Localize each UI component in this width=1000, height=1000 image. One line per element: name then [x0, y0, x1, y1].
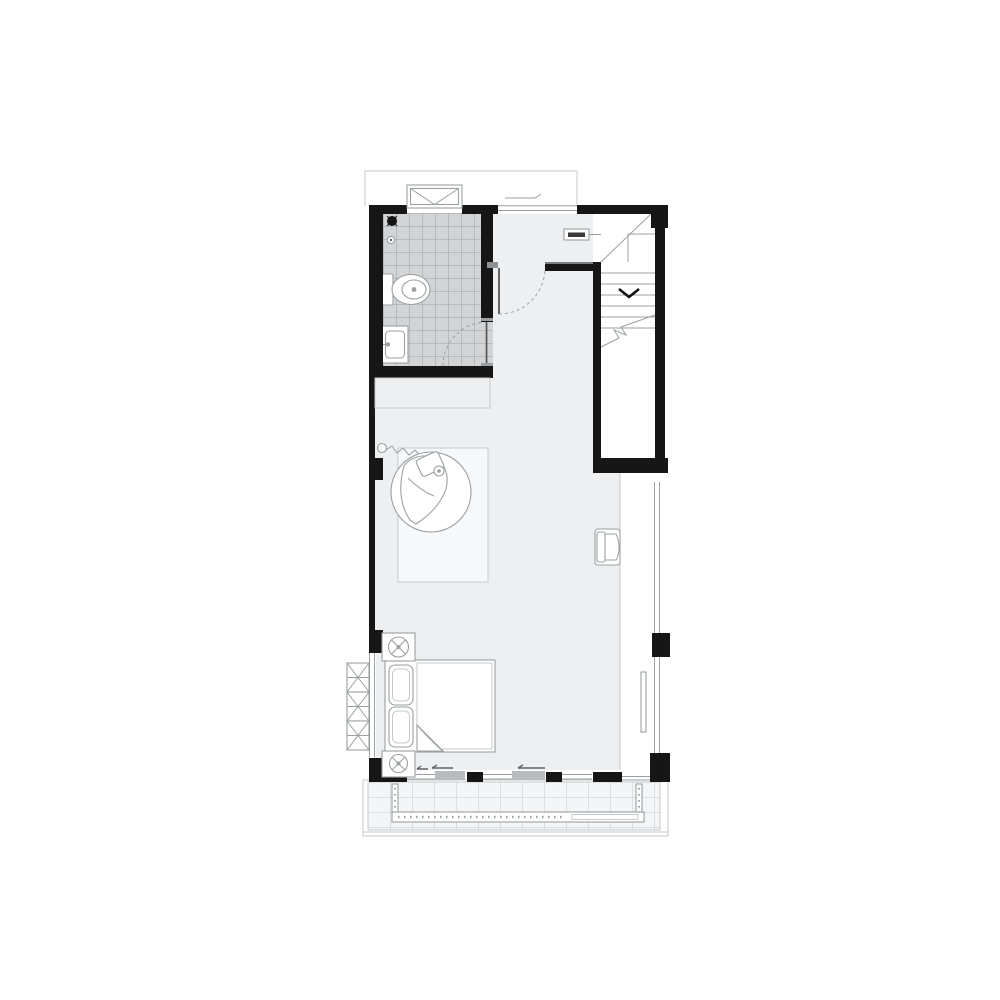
skylight-window-icon	[407, 185, 462, 208]
bathroom	[381, 213, 493, 366]
stair-tag	[564, 229, 601, 240]
bed	[385, 660, 495, 752]
lamp-icon	[390, 755, 408, 773]
roof-outline	[365, 171, 577, 206]
deck-tile-grid	[368, 782, 660, 830]
window-latch-icon	[505, 194, 541, 198]
lounge-chair	[595, 529, 620, 565]
sliding-door-panel	[512, 771, 545, 780]
staircase	[601, 212, 655, 458]
toilet-icon	[381, 274, 430, 305]
vanity-sink-icon	[381, 326, 408, 363]
lamp-icon	[389, 637, 409, 657]
nightstand-bottom	[382, 751, 415, 777]
leaning-mirror	[641, 672, 646, 732]
balcony-deck	[363, 780, 668, 836]
glass-curtain-wall	[655, 482, 660, 753]
hall-window	[498, 194, 577, 214]
wardrobe-units	[347, 663, 369, 750]
nightstand-top	[382, 633, 415, 661]
sliding-door-panel	[435, 771, 465, 780]
floor-plan-canvas	[0, 0, 1000, 1000]
floor-plan-drawing	[0, 0, 1000, 1000]
chain-anchor	[378, 444, 387, 453]
